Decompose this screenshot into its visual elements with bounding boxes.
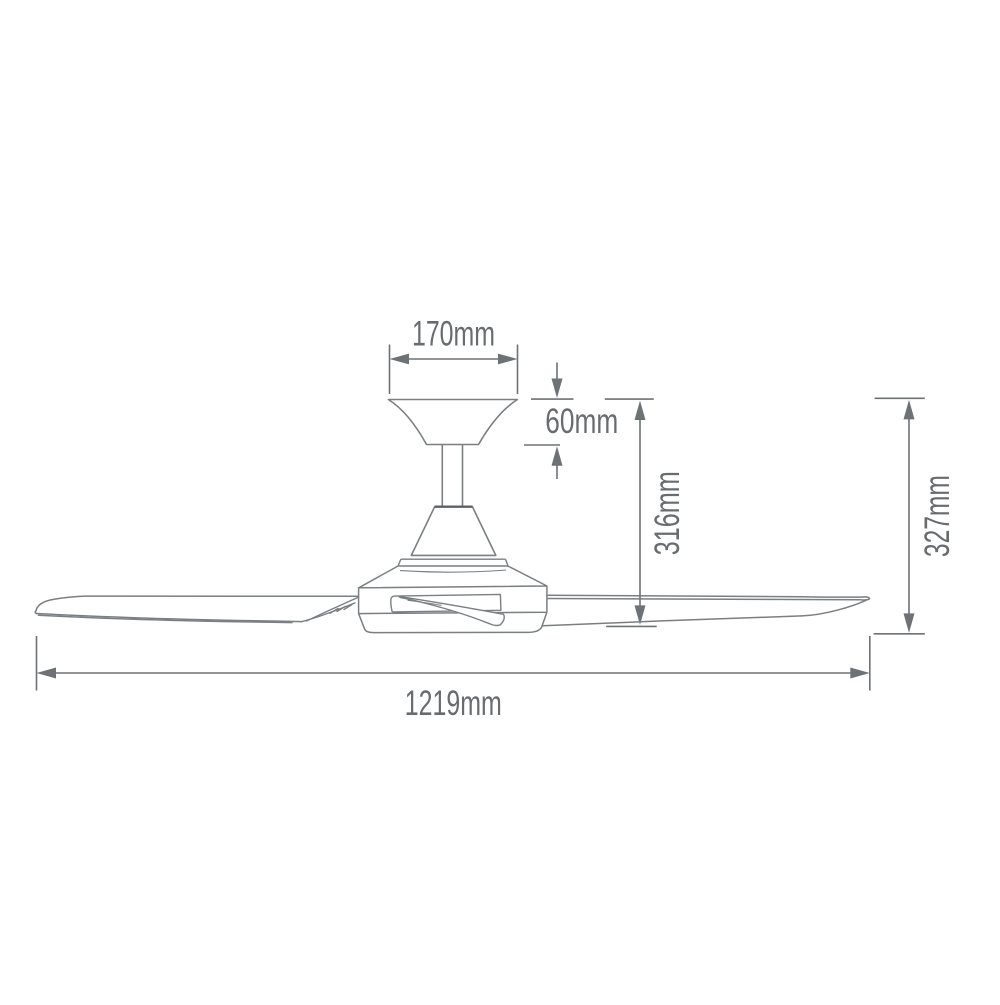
svg-text:1219mm: 1219mm: [405, 684, 502, 723]
svg-text:327mm: 327mm: [918, 475, 957, 557]
svg-text:170mm: 170mm: [412, 315, 495, 354]
svg-text:316mm: 316mm: [648, 471, 687, 555]
svg-text:60mm: 60mm: [545, 402, 618, 441]
